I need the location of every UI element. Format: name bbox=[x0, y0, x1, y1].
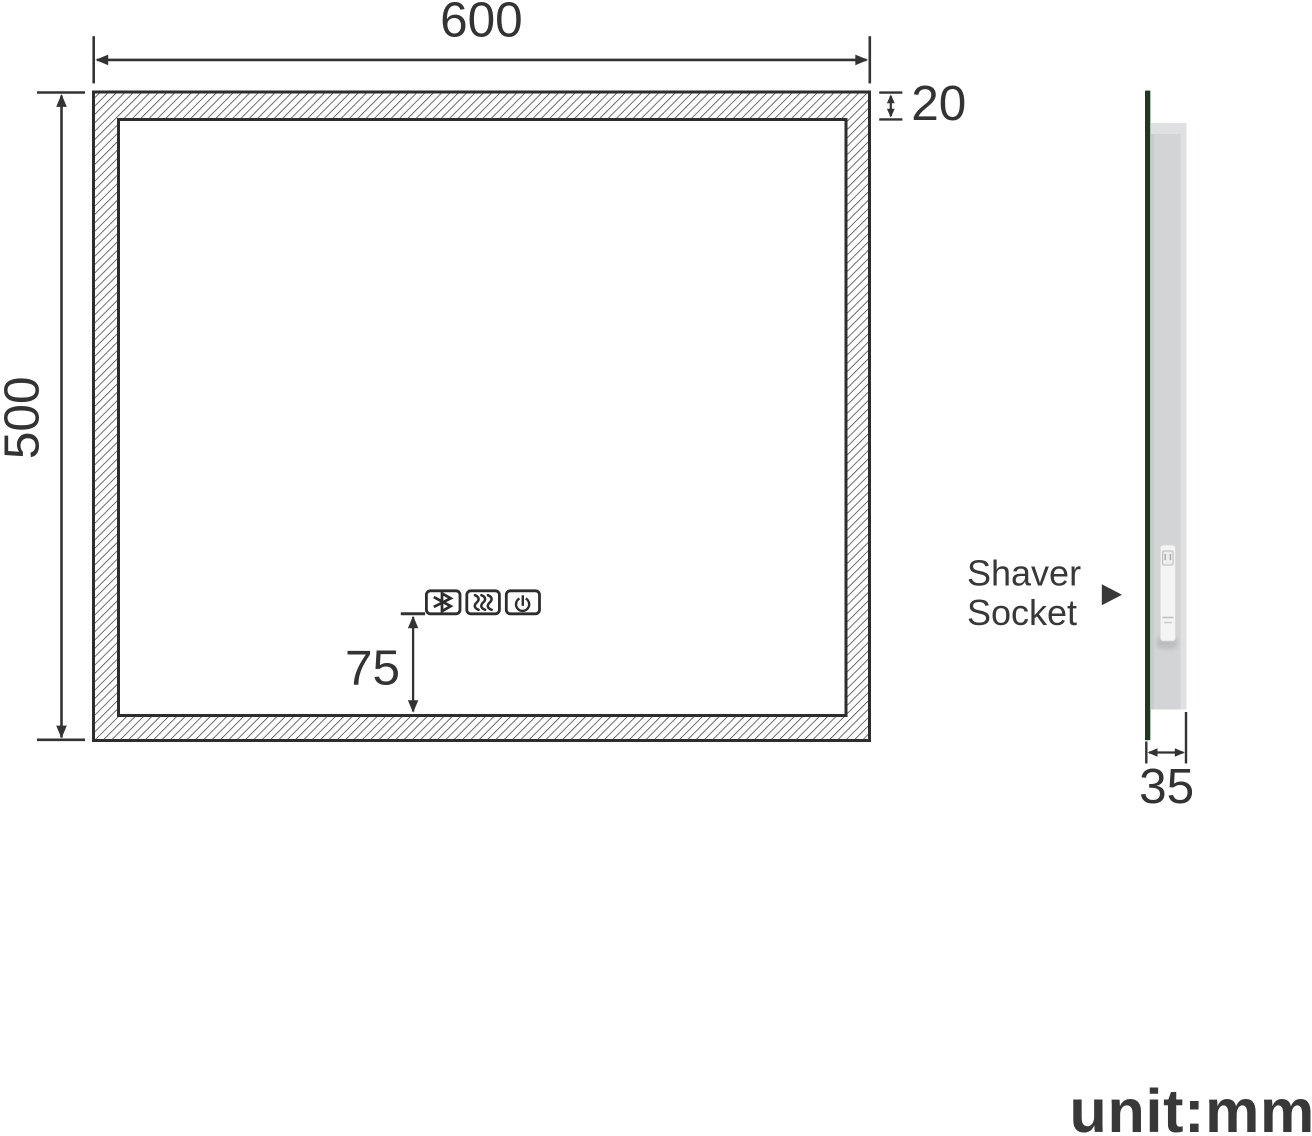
svg-text:20: 20 bbox=[911, 76, 966, 131]
svg-text:unit:mm: unit:mm bbox=[1070, 1077, 1312, 1136]
svg-text:500: 500 bbox=[0, 377, 50, 460]
svg-text:35: 35 bbox=[1139, 759, 1194, 814]
svg-text:Socket: Socket bbox=[967, 592, 1077, 633]
svg-text:600: 600 bbox=[440, 0, 523, 48]
svg-text:Shaver: Shaver bbox=[967, 553, 1081, 594]
svg-text:75: 75 bbox=[345, 641, 400, 696]
